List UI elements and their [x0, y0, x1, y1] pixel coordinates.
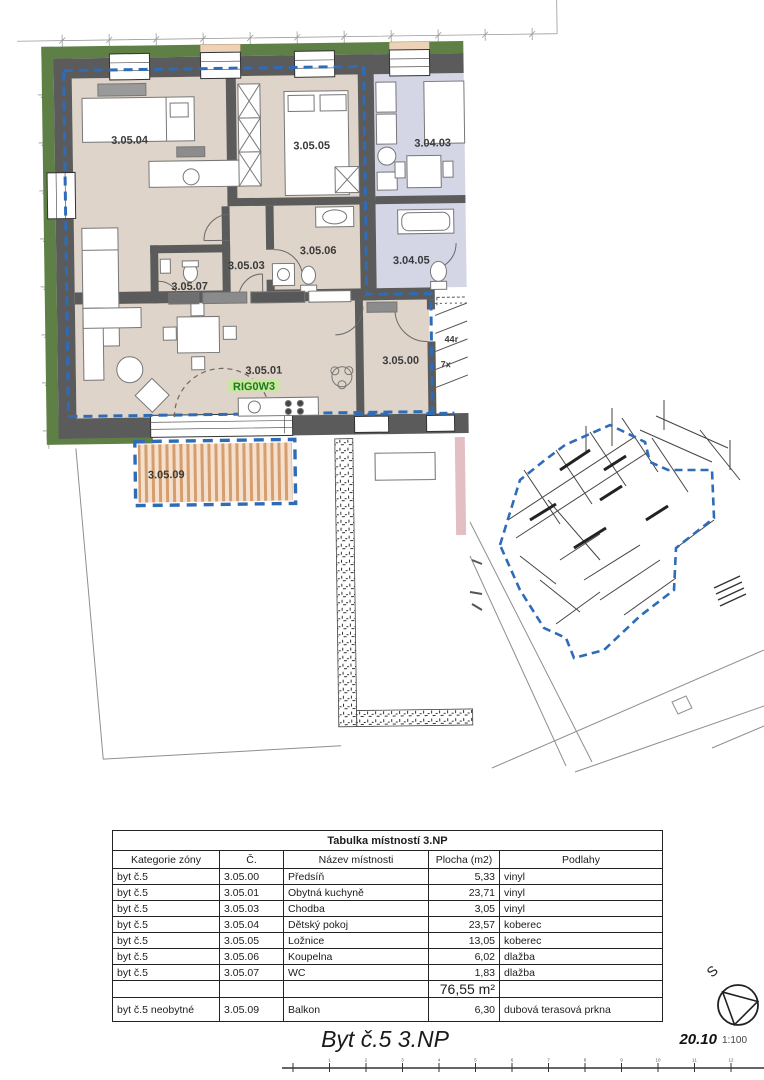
cell-name: WC [284, 965, 429, 981]
site-wall-hatch-horizontal [357, 709, 473, 727]
svg-text:9: 9 [620, 1058, 623, 1063]
cell-empty [500, 981, 663, 998]
cell-area: 23,57 [429, 917, 500, 933]
room-label-304-05: 3.04.05 [393, 254, 430, 267]
room-label-305-01: 3.05.01 [245, 365, 282, 378]
header-name: Název místnosti [284, 851, 429, 869]
axon-apartment-outline [500, 425, 714, 658]
svg-text:8: 8 [584, 1058, 587, 1063]
header-floor: Podlahy [500, 851, 663, 869]
cell-area: 6,30 [429, 998, 500, 1022]
table-row: byt č.53.05.06Koupelna6,02dlažba [113, 949, 663, 965]
header-area: Plocha (m2) [429, 851, 500, 869]
rig-tag-label: RIG0W3 [233, 381, 275, 394]
room-label-305-07: 3.05.07 [171, 281, 208, 294]
stair-note-1: 44r [445, 334, 459, 344]
cell-floor: vinyl [500, 901, 663, 917]
axon-bushes [470, 560, 482, 610]
room-label-305-09: 3.05.09 [148, 469, 185, 482]
drawing-scale: 1:100 [722, 1035, 747, 1046]
room-table: Tabulka místností 3.NP Kategorie zóny Č.… [112, 830, 663, 1022]
svg-text:10: 10 [655, 1058, 661, 1063]
drawing-number: 20.10 [662, 1031, 717, 1048]
cell-area: 3,05 [429, 901, 500, 917]
cell-number: 3.05.09 [220, 998, 284, 1022]
svg-text:3: 3 [401, 1058, 404, 1063]
cell-area: 1,83 [429, 965, 500, 981]
cell-number: 3.05.01 [220, 885, 284, 901]
svg-text:12: 12 [728, 1058, 734, 1063]
cell-floor: dlažba [500, 949, 663, 965]
cell-empty [284, 981, 429, 998]
room-label-305-03: 3.05.03 [228, 260, 265, 273]
table-row: byt č.53.05.04Dětský pokoj23,57koberec [113, 917, 663, 933]
cell-number: 3.05.05 [220, 933, 284, 949]
table-row: byt č.53.05.03Chodba3,05vinyl [113, 901, 663, 917]
header-number: Č. [220, 851, 284, 869]
cell-category: byt č.5 [113, 901, 220, 917]
table-row: byt č.53.05.07WC1,83dlažba [113, 965, 663, 981]
compass-circle [718, 985, 758, 1025]
cell-name: Obytná kuchyně [284, 885, 429, 901]
cell-category: byt č.5 [113, 885, 220, 901]
svg-text:7: 7 [547, 1058, 550, 1063]
room-table-header: Kategorie zóny Č. Název místnosti Plocha… [113, 851, 663, 869]
cell-category: byt č.5 [113, 965, 220, 981]
cell-category: byt č.5 neobytné [113, 998, 220, 1022]
svg-text:2: 2 [365, 1058, 368, 1063]
total-area: 76,55 m² [429, 981, 500, 998]
cell-floor: dubová terasová prkna [500, 998, 663, 1022]
site-pink-strip [455, 437, 466, 535]
cell-category: byt č.5 [113, 869, 220, 885]
floor-plan-drawing: 3.05.04 3.05.05 3.04.03 3.05.06 3.05.03 … [0, 0, 764, 800]
cell-area: 5,33 [429, 869, 500, 885]
svg-text:4: 4 [438, 1058, 441, 1063]
cell-number: 3.05.06 [220, 949, 284, 965]
cell-floor: koberec [500, 917, 663, 933]
cell-name: Balkon [284, 998, 429, 1022]
plan-group: 3.05.04 3.05.05 3.04.03 3.05.06 3.05.03 … [17, 0, 567, 760]
scale-bar: 123456789101112 [278, 1055, 764, 1079]
table-balcony-row: byt č.5 neobytné 3.05.09 Balkon 6,30 dub… [113, 998, 663, 1022]
cell-name: Ložnice [284, 933, 429, 949]
cell-category: byt č.5 [113, 917, 220, 933]
svg-text:11: 11 [692, 1058, 697, 1063]
cell-area: 13,05 [429, 933, 500, 949]
room-label-305-00: 3.05.00 [382, 355, 419, 368]
cell-name: Koupelna [284, 949, 429, 965]
axon-walls-dark [530, 450, 668, 548]
cell-name: Předsíň [284, 869, 429, 885]
table-row: byt č.53.05.00Předsíň5,33vinyl [113, 869, 663, 885]
site-planter [375, 452, 435, 480]
cell-number: 3.05.07 [220, 965, 284, 981]
cell-empty [220, 981, 284, 998]
svg-text:1: 1 [328, 1058, 331, 1063]
cell-floor: vinyl [500, 885, 663, 901]
cell-area: 23,71 [429, 885, 500, 901]
cell-floor: dlažba [500, 965, 663, 981]
north-compass: S [696, 948, 764, 1033]
table-row: byt č.53.05.01Obytná kuchyně23,71vinyl [113, 885, 663, 901]
cell-category: byt č.5 [113, 949, 220, 965]
room-label-304-03: 3.04.03 [414, 137, 451, 150]
axon-grill [714, 576, 746, 606]
cell-floor: koberec [500, 933, 663, 949]
axonometric-view [470, 400, 764, 772]
drawing-sheet: 3.05.04 3.05.05 3.04.03 3.05.06 3.05.03 … [0, 0, 764, 1080]
room-label-305-05: 3.05.05 [293, 140, 330, 153]
table-row: byt č.53.05.05Ložnice13,05koberec [113, 933, 663, 949]
room-table-title: Tabulka místností 3.NP [113, 831, 663, 851]
scale-bar-labels: 123456789101112 [328, 1058, 734, 1063]
cell-floor: vinyl [500, 869, 663, 885]
svg-text:6: 6 [511, 1058, 514, 1063]
cell-area: 6,02 [429, 949, 500, 965]
north-letter: S [703, 962, 721, 980]
drawing-title: Byt č.5 3.NP [250, 1026, 520, 1053]
room-label-305-04: 3.05.04 [111, 134, 149, 147]
room-label-305-06: 3.05.06 [300, 245, 337, 258]
cell-empty [113, 981, 220, 998]
svg-text:5: 5 [474, 1058, 477, 1063]
stair-note-2: 7x [441, 359, 451, 369]
cell-category: byt č.5 [113, 933, 220, 949]
cell-name: Chodba [284, 901, 429, 917]
cell-number: 3.05.03 [220, 901, 284, 917]
site-wall-hatch-vertical [335, 439, 357, 727]
cell-number: 3.05.04 [220, 917, 284, 933]
header-category: Kategorie zóny [113, 851, 220, 869]
cell-number: 3.05.00 [220, 869, 284, 885]
table-total-row: 76,55 m² [113, 981, 663, 998]
cell-name: Dětský pokoj [284, 917, 429, 933]
